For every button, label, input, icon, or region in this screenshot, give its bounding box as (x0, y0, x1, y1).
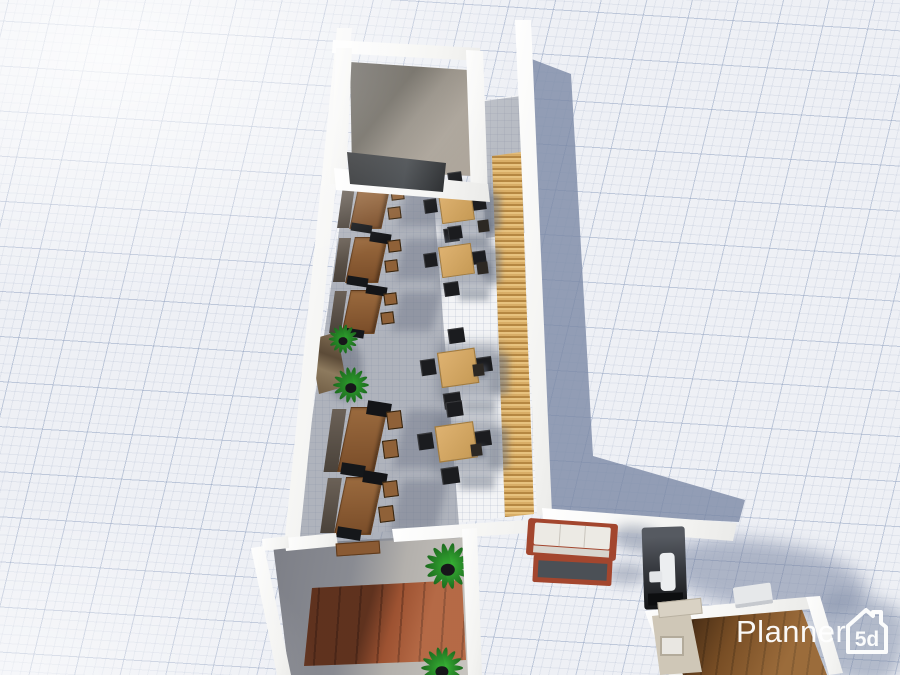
bar-stool[interactable] (470, 443, 482, 456)
kitchen-sink (660, 636, 684, 656)
dining-chair (440, 466, 460, 485)
booth-side-chair (387, 206, 401, 219)
chair-shadow (459, 476, 494, 490)
potted-plant[interactable] (420, 646, 464, 675)
booth-side-chair (381, 311, 395, 324)
chair-shadow (490, 428, 509, 468)
bar-stool[interactable] (472, 363, 484, 376)
booth-side-chair (388, 239, 403, 253)
booth-dining-set[interactable] (328, 406, 420, 474)
booth-side-chair (382, 480, 399, 497)
bar-stool[interactable] (477, 219, 489, 232)
square-table-top (438, 243, 475, 278)
chair-shadow (459, 289, 489, 301)
plant-pot (435, 666, 448, 675)
dining-chair (447, 225, 463, 240)
booth-dining-set[interactable] (324, 476, 416, 536)
dining-chair (420, 358, 437, 376)
dining-chair (443, 281, 460, 297)
planner-3d-viewport[interactable]: Planner 5d (0, 0, 900, 675)
dining-chair (447, 327, 465, 344)
booth-side-chair (378, 505, 395, 522)
dining-chair (417, 432, 434, 450)
square-table-set[interactable] (412, 400, 499, 487)
booth-side-chair (386, 411, 403, 430)
plant-pot (339, 337, 348, 345)
dining-chair (423, 198, 438, 214)
watermark-brand-text: Planner (736, 614, 846, 650)
vending-machine[interactable] (642, 526, 688, 609)
chair-shadow (491, 355, 509, 394)
watermark-badge-text: 5d (855, 628, 880, 651)
booth-dining-set[interactable] (336, 236, 418, 284)
vending-arm (649, 571, 662, 582)
coffee-table[interactable] (532, 555, 612, 586)
booth-side-chair (382, 439, 399, 458)
dining-chair (423, 252, 438, 268)
potted-plant[interactable] (332, 366, 370, 404)
watermark: Planner 5d (736, 598, 900, 672)
dining-chair (445, 400, 463, 417)
planner5d-house-icon: 5d (840, 602, 894, 660)
bar-stool[interactable] (476, 261, 488, 274)
booth-side-chair (384, 259, 399, 273)
booth-side-chair (384, 292, 398, 305)
potted-plant[interactable] (328, 324, 358, 354)
